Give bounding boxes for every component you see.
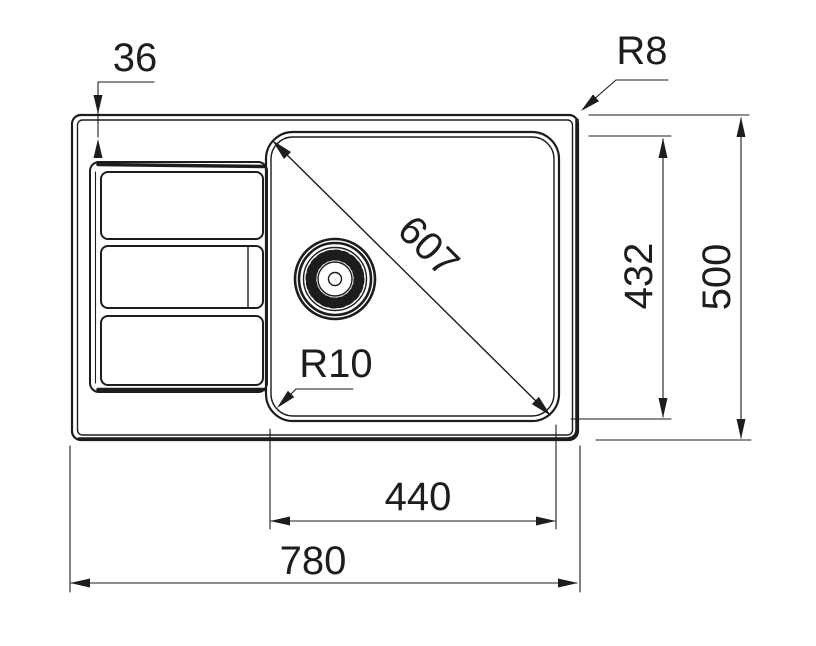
technical-drawing-canvas: 607 36 R8 R10 432 500 440 780 <box>0 0 816 646</box>
drain-strainer <box>295 239 375 319</box>
dim-432-arrow-down <box>659 398 668 418</box>
dim-label-outer-radius: R8 <box>616 29 667 73</box>
dim-432-arrow-up <box>659 138 668 158</box>
drainboard-rib-2 <box>101 246 263 308</box>
dim-780-arrow-right <box>558 579 578 588</box>
dim-500-arrow-up <box>737 117 746 137</box>
dim-label-bowl-width: 440 <box>385 475 452 519</box>
dim-label-bowl-radius: R10 <box>299 342 372 386</box>
dim-500-arrow-down <box>737 419 746 439</box>
dim-label-edge-offset: 36 <box>113 36 158 80</box>
drain-hub <box>318 262 352 296</box>
dim-36-arrow-down <box>94 95 103 114</box>
r8-leader-line <box>584 80 668 108</box>
drainboard-rib-1 <box>101 172 263 239</box>
dim-label-overall-width: 780 <box>280 539 347 583</box>
sink-dimension-drawing: 607 36 R8 R10 432 500 440 780 <box>0 0 816 646</box>
dim-label-bowl-depth: 432 <box>617 243 661 310</box>
drainboard-outline <box>90 162 267 392</box>
drainboard-rib-3 <box>101 316 263 385</box>
dim-label-overall-depth: 500 <box>695 244 739 311</box>
drainboard-top-edge <box>98 165 265 167</box>
drain-center-hole <box>329 273 342 286</box>
dim-440-arrow-right <box>536 517 556 526</box>
dim-440-arrow-left <box>270 517 290 526</box>
dim-780-arrow-left <box>70 579 90 588</box>
dim-label-diagonal: 607 <box>389 208 467 286</box>
dim-36-arrow-up <box>94 139 103 158</box>
